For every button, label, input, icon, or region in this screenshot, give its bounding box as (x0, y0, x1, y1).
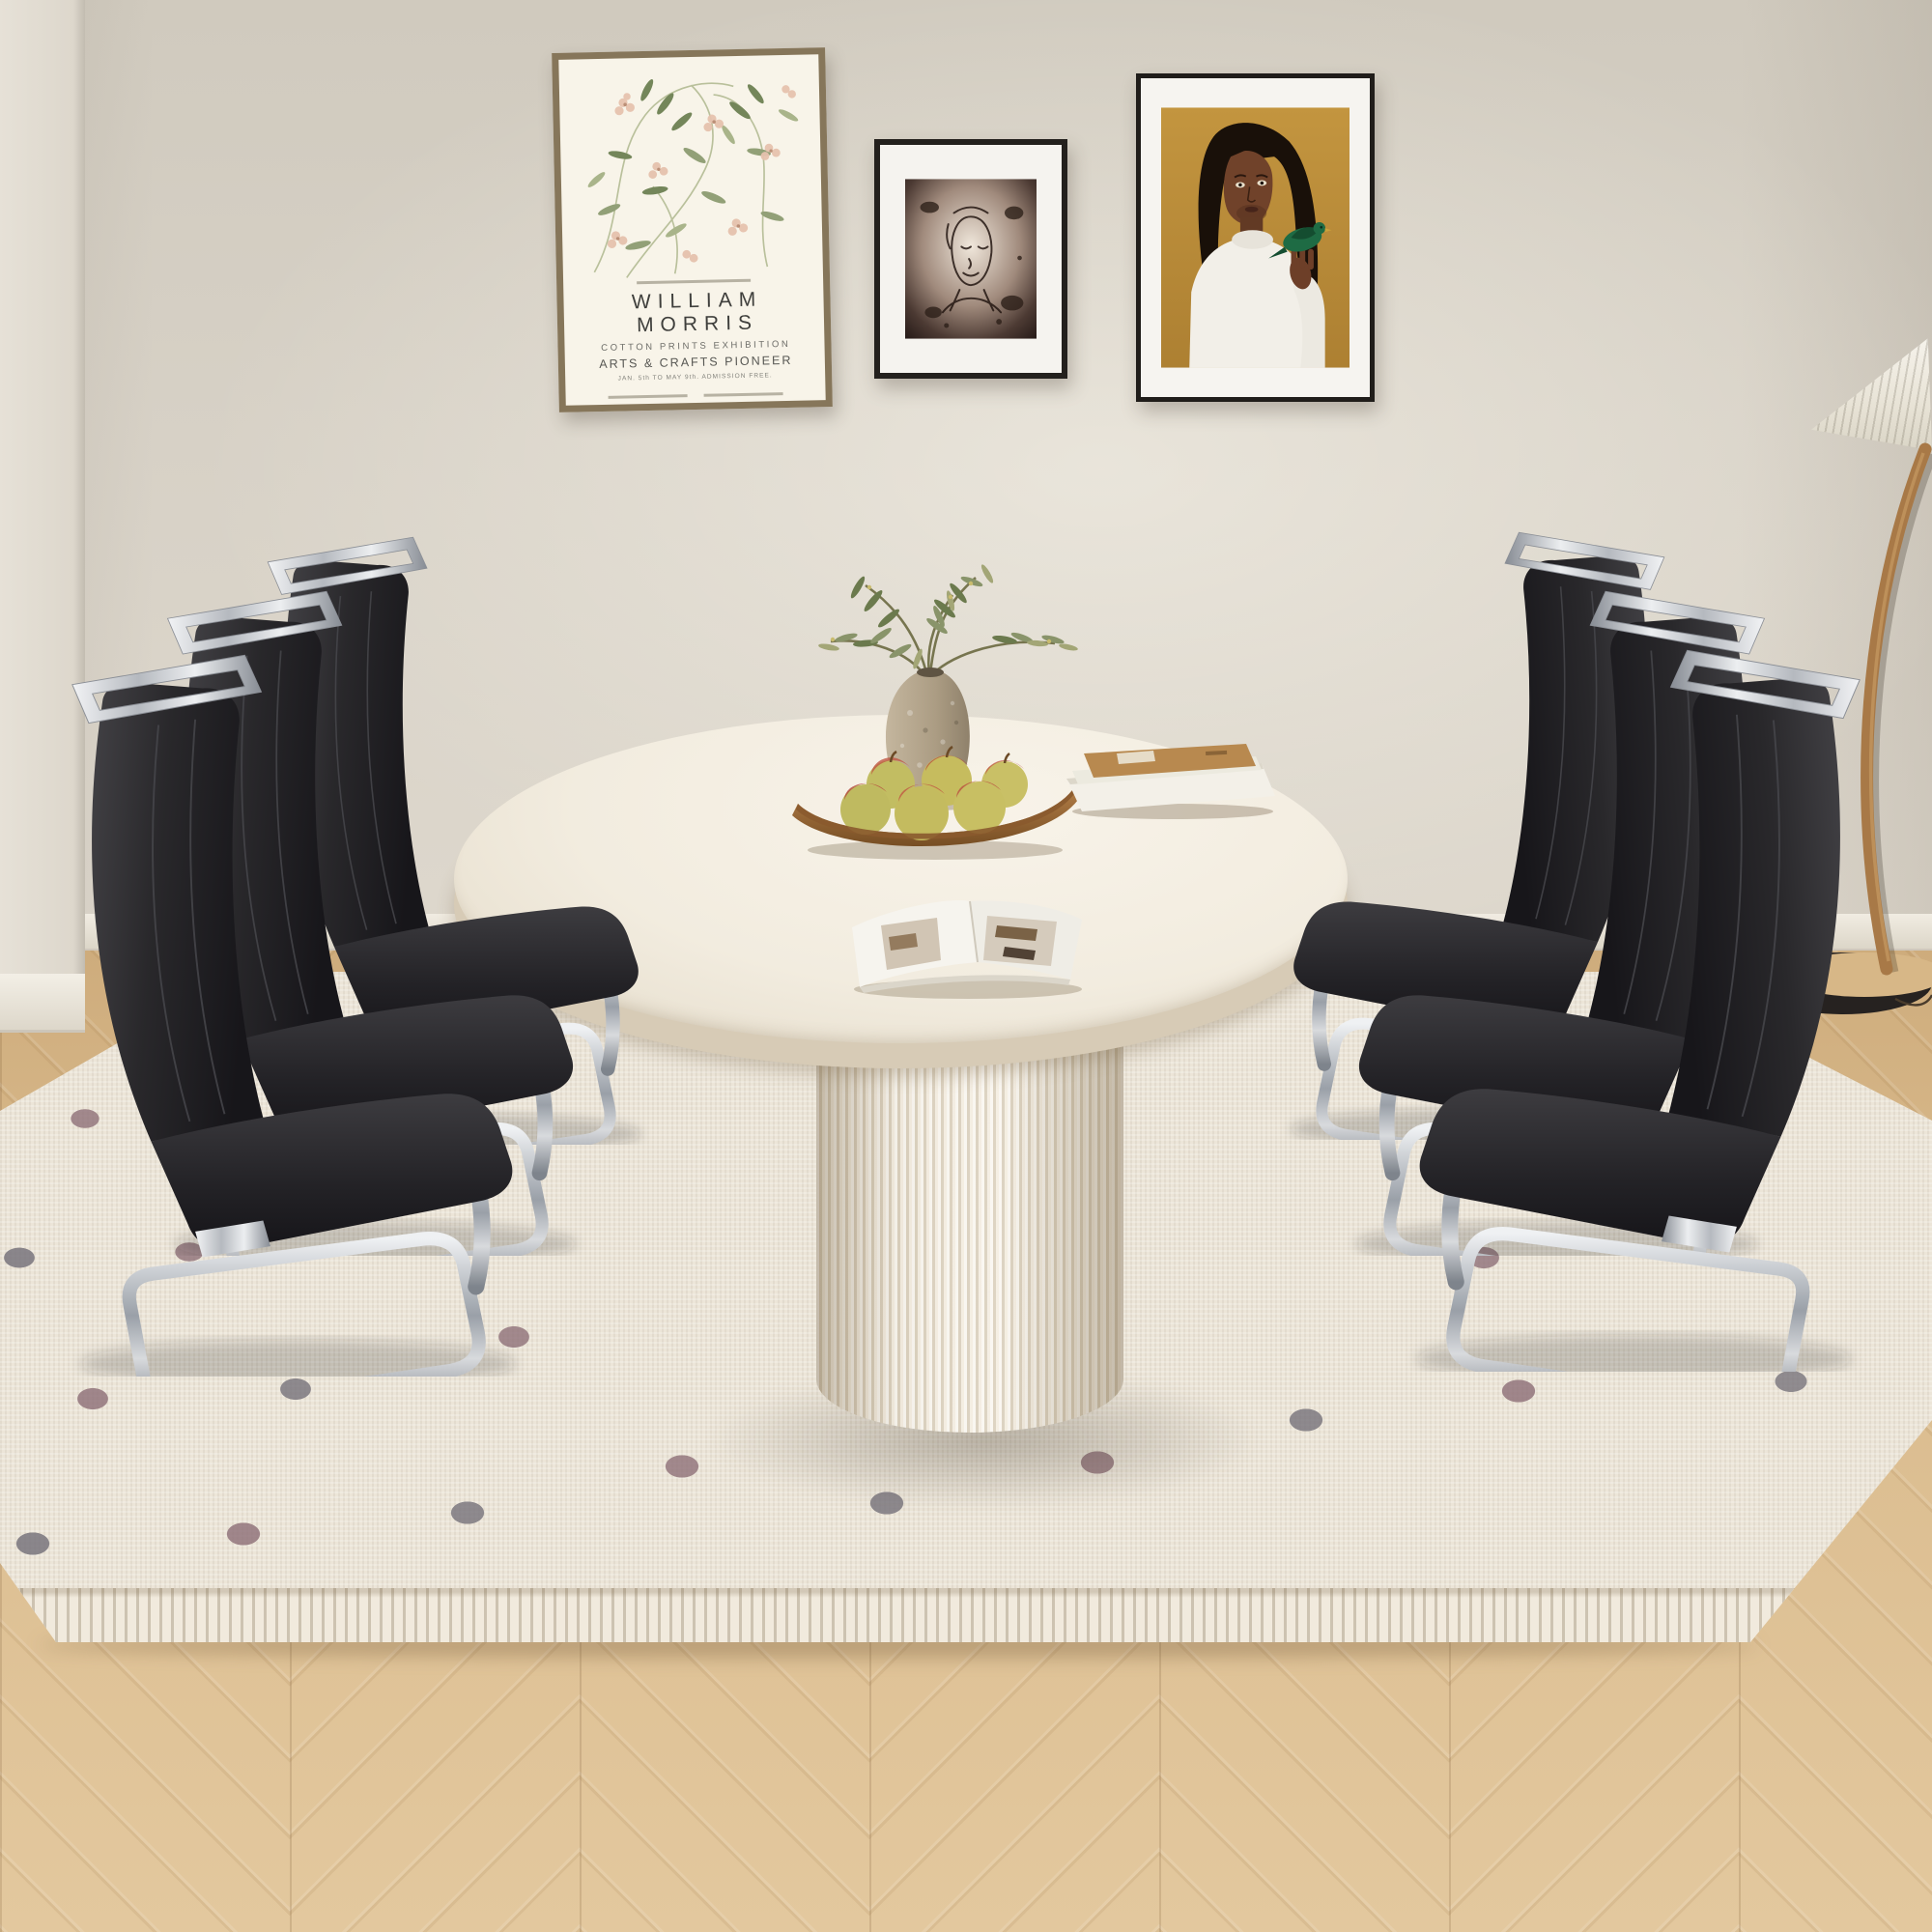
fruit-bowl (790, 730, 1080, 866)
poster-title: WILLIAM MORRIS (563, 287, 824, 339)
poster-subtitle-2: ARTS & CRAFTS PIONEER (565, 353, 825, 372)
poster-subtitle-1: COTTON PRINTS EXHIBITION (564, 338, 824, 355)
rug-fringe (0, 1588, 1932, 1648)
poster-smallprint-bar (609, 394, 688, 399)
poster-smallprint-bar (703, 392, 782, 397)
dining-chair-right-front (1391, 638, 1932, 1372)
table-fluted-pedestal (816, 1022, 1123, 1433)
poster-text-block: WILLIAM MORRIS COTTON PRINTS EXHIBITION … (563, 275, 826, 405)
poster-details: JAN. 5th TO MAY 9th. ADMISSION FREE. (565, 371, 825, 384)
portrait-artwork (1161, 99, 1350, 377)
open-magazine (842, 885, 1094, 1003)
ink-portrait-artwork (905, 170, 1037, 348)
poster-william-morris: WILLIAM MORRIS COTTON PRINTS EXHIBITION … (552, 47, 833, 412)
poster-pretitle-bar (637, 279, 751, 284)
dining-chair-left-front (0, 642, 541, 1377)
framed-portrait-painting (1136, 73, 1375, 402)
book-stack (1061, 740, 1283, 822)
framed-ink-sketch (874, 139, 1067, 379)
poster-floral-pattern (558, 54, 823, 281)
